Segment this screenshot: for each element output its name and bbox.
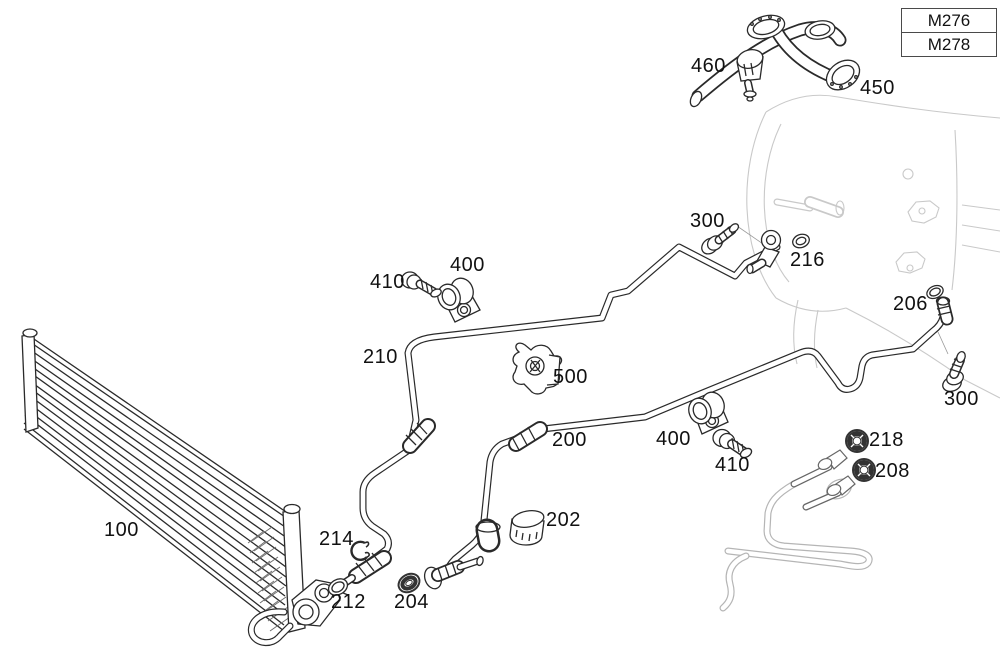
retaining-clip-214: [351, 542, 369, 560]
part-label-206[interactable]: 206: [893, 293, 928, 316]
part-label-450[interactable]: 450: [860, 77, 895, 100]
seal-218: [846, 430, 868, 452]
screw-410-top: [402, 272, 443, 298]
part-label-216[interactable]: 216: [790, 249, 825, 272]
engine-code-legend: M276 M278: [901, 8, 997, 57]
pipe-200-hose-flange: [476, 522, 500, 541]
legend-entry-m278[interactable]: M278: [902, 32, 996, 56]
part-label-410-top[interactable]: 410: [370, 271, 405, 294]
plug-460: [735, 47, 765, 101]
part-label-400-mid[interactable]: 400: [656, 428, 691, 451]
part-label-202[interactable]: 202: [546, 509, 581, 532]
part-label-500[interactable]: 500: [553, 366, 588, 389]
part-label-208[interactable]: 208: [875, 460, 910, 483]
part-label-214[interactable]: 214: [319, 528, 354, 551]
part-label-204[interactable]: 204: [394, 591, 429, 614]
clamp-202: [510, 508, 545, 545]
seal-208: [853, 459, 875, 481]
part-label-200[interactable]: 200: [552, 429, 587, 452]
part-label-300-top[interactable]: 300: [690, 210, 725, 233]
part-label-218[interactable]: 218: [869, 429, 904, 452]
pipe-fitting-206: [937, 297, 952, 319]
parts-diagram-canvas: 100 200 202 204 206 208 210 212 214 216 …: [0, 0, 1000, 664]
pipe-clamp-400-top: [434, 275, 480, 322]
legend-entry-m276[interactable]: M276: [902, 9, 996, 32]
pipe-end-fittings: [794, 450, 855, 507]
oil-cooler: [22, 329, 348, 643]
pipe-200-crimp-fitting: [512, 427, 540, 450]
part-label-400-top[interactable]: 400: [450, 254, 485, 277]
part-label-212[interactable]: 212: [331, 591, 366, 614]
diagram-artwork: [0, 0, 1000, 664]
sealing-ring-216: [791, 232, 811, 250]
part-label-460[interactable]: 460: [691, 55, 726, 78]
cooler-outlet: [251, 612, 290, 643]
part-label-210[interactable]: 210: [363, 346, 398, 369]
output-shaft: [777, 201, 844, 215]
part-label-300-right[interactable]: 300: [944, 388, 979, 411]
part-label-410-mid[interactable]: 410: [715, 454, 750, 477]
banjo-eyelet-216: [747, 231, 781, 274]
part-label-100[interactable]: 100: [104, 519, 139, 542]
